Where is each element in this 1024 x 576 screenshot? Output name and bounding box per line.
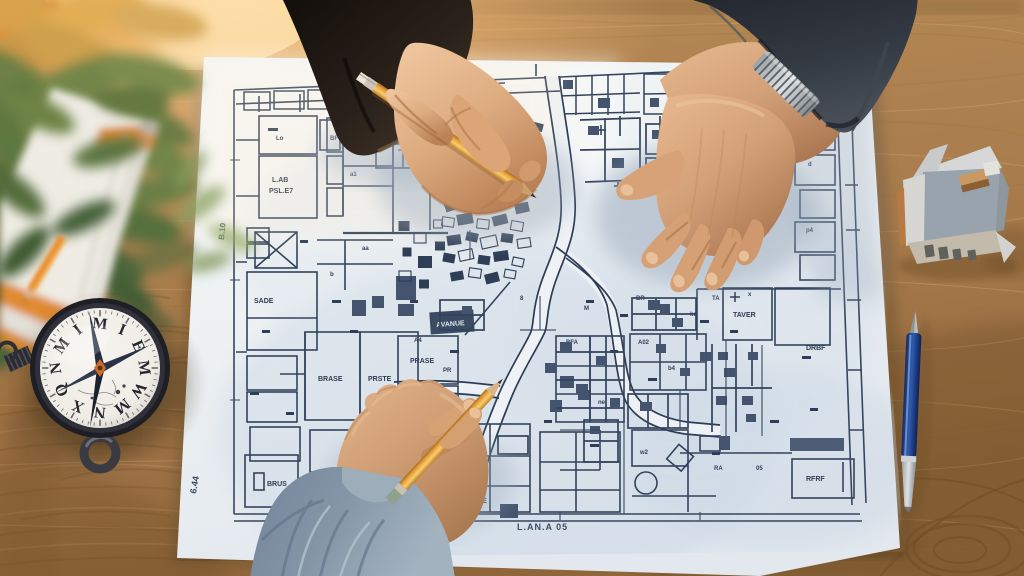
svg-text:w2: w2 xyxy=(639,450,649,456)
svg-text:BRASE: BRASE xyxy=(318,376,343,383)
svg-text:aa: aa xyxy=(362,246,369,252)
svg-text:TAVER: TAVER xyxy=(733,312,756,319)
svg-text:A4: A4 xyxy=(414,338,422,344)
svg-text:ne: ne xyxy=(598,400,606,406)
svg-text:PR: PR xyxy=(443,368,452,374)
svg-text:M: M xyxy=(134,359,153,376)
svg-text:05: 05 xyxy=(756,466,763,472)
svg-text:A02: A02 xyxy=(638,340,650,346)
svg-text:BRUS: BRUS xyxy=(267,481,287,488)
svg-text:PRASE: PRASE xyxy=(410,358,434,365)
svg-text:RFRF: RFRF xyxy=(806,476,825,483)
svg-text:BR: BR xyxy=(636,296,645,302)
svg-text:DRBF: DRBF xyxy=(806,345,826,352)
svg-text:RA: RA xyxy=(714,466,723,472)
svg-text:TA: TA xyxy=(712,296,720,302)
svg-text:SADE: SADE xyxy=(254,298,274,305)
svg-text:L.AN.A 05: L.AN.A 05 xyxy=(517,522,568,532)
svg-text:PRSTE: PRSTE xyxy=(368,376,392,383)
svg-text:b: b xyxy=(330,272,334,278)
svg-text:b4: b4 xyxy=(668,366,676,372)
svg-text:M: M xyxy=(584,306,589,312)
